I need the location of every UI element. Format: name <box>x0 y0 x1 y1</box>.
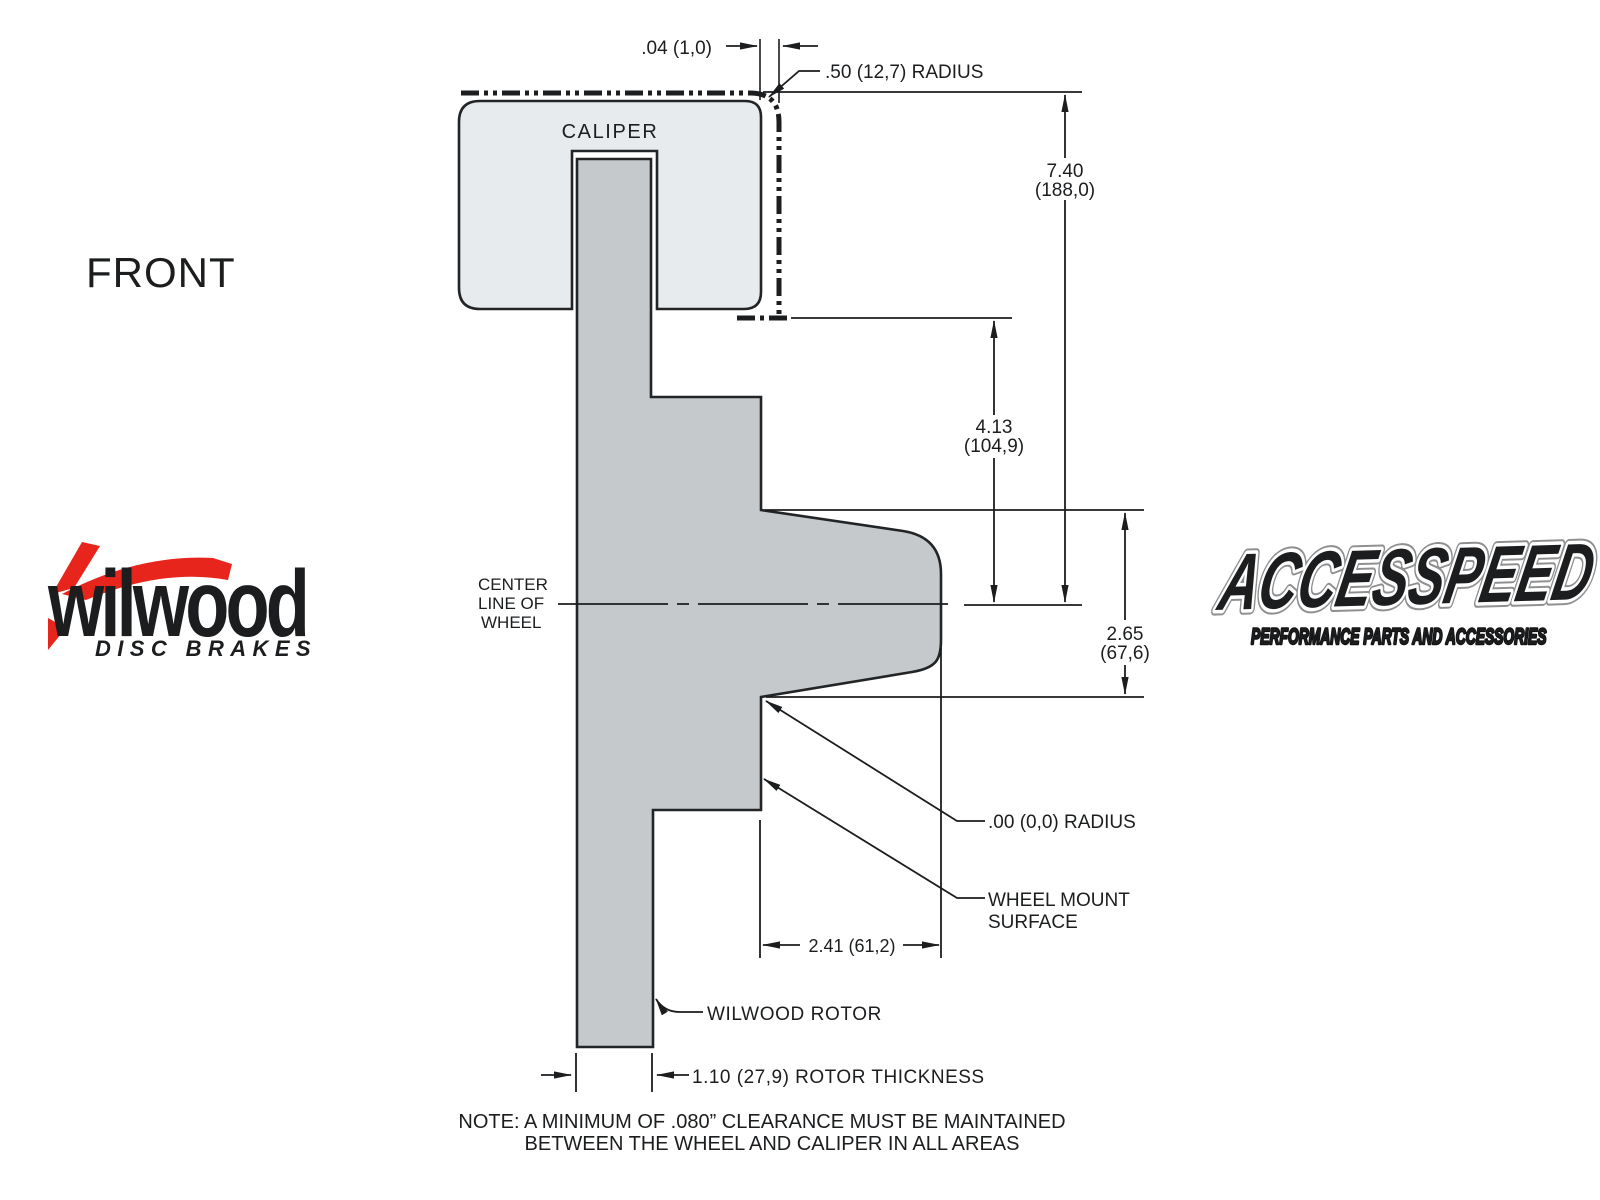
svg-text:SURFACE: SURFACE <box>988 912 1078 933</box>
svg-text:2.41 (61,2): 2.41 (61,2) <box>808 936 895 956</box>
svg-text:PERFORMANCE PARTS AND ACCESSOR: PERFORMANCE PARTS AND ACCESSORIES <box>1251 624 1547 649</box>
svg-text:FRONT: FRONT <box>86 249 236 296</box>
svg-text:2.65: 2.65 <box>1107 624 1144 645</box>
svg-text:WILWOOD ROTOR: WILWOOD ROTOR <box>707 1004 882 1025</box>
svg-text:(188,0): (188,0) <box>1035 180 1095 201</box>
svg-text:1.10 (27,9) ROTOR THICKNESS: 1.10 (27,9) ROTOR THICKNESS <box>692 1067 985 1088</box>
svg-text:ACCESSPEED: ACCESSPEED <box>1211 526 1600 627</box>
svg-text:WHEEL MOUNT: WHEEL MOUNT <box>988 890 1130 911</box>
svg-text:(104,9): (104,9) <box>964 436 1024 457</box>
svg-text:BETWEEN THE WHEEL AND CALIPER: BETWEEN THE WHEEL AND CALIPER IN ALL ARE… <box>525 1133 1020 1155</box>
svg-text:WHEEL: WHEEL <box>481 613 541 632</box>
svg-text:4.13: 4.13 <box>976 417 1013 438</box>
svg-text:.04 (1,0): .04 (1,0) <box>641 38 712 59</box>
svg-text:.50 (12,7) RADIUS: .50 (12,7) RADIUS <box>825 62 983 83</box>
svg-text:CALIPER: CALIPER <box>562 121 659 143</box>
svg-text:.00 (0,0) RADIUS: .00 (0,0) RADIUS <box>988 812 1136 833</box>
svg-text:7.40: 7.40 <box>1047 161 1084 182</box>
svg-text:CENTER: CENTER <box>478 575 548 594</box>
svg-text:DISC BRAKES: DISC BRAKES <box>95 636 317 661</box>
svg-text:LINE OF: LINE OF <box>478 594 544 613</box>
svg-text:(67,6): (67,6) <box>1100 643 1150 664</box>
svg-text:NOTE: A MINIMUM OF .080” CLEAR: NOTE: A MINIMUM OF .080” CLEARANCE MUST … <box>458 1111 1065 1133</box>
